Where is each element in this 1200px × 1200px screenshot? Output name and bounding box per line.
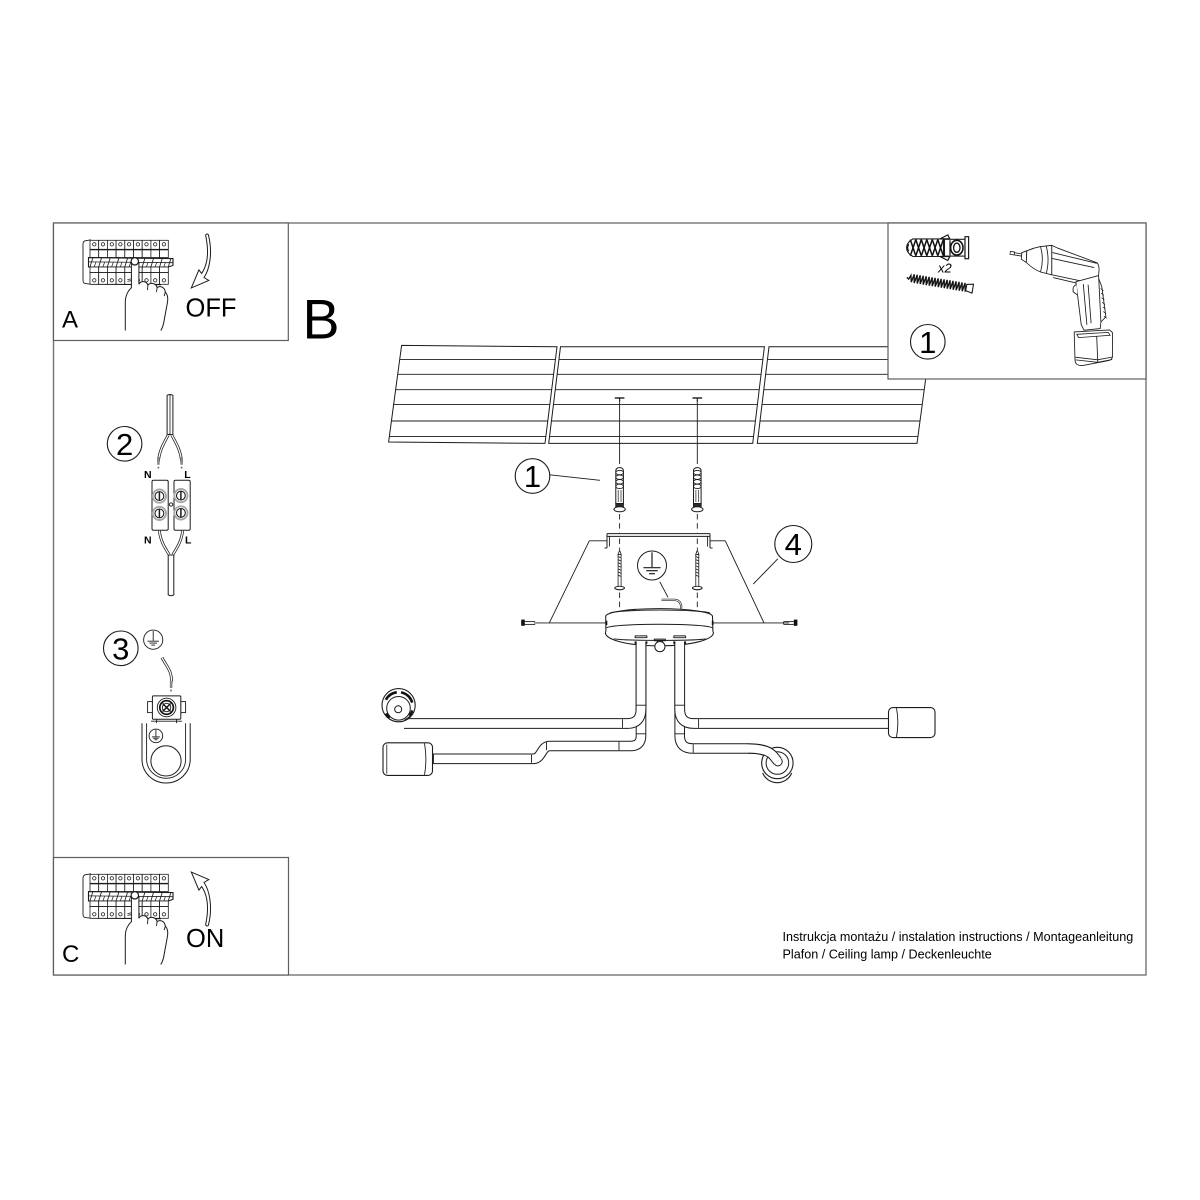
svg-text:2: 2: [116, 427, 133, 462]
svg-text:ON: ON: [186, 925, 224, 953]
svg-text:N: N: [144, 534, 152, 546]
svg-text:x2: x2: [937, 261, 953, 276]
svg-text:L: L: [184, 469, 191, 481]
svg-text:N: N: [144, 469, 152, 481]
svg-text:A: A: [62, 307, 78, 334]
svg-text:3: 3: [112, 631, 129, 666]
svg-text:OFF: OFF: [186, 295, 237, 323]
svg-text:L: L: [185, 534, 192, 546]
svg-text:Plafon / Ceiling lamp / Decken: Plafon / Ceiling lamp / Deckenleuchte: [783, 948, 992, 962]
svg-text:Instrukcja montażu / instalati: Instrukcja montażu / instalation instruc…: [783, 930, 1134, 944]
svg-text:4: 4: [785, 527, 802, 562]
svg-text:C: C: [62, 941, 79, 968]
svg-text:B: B: [303, 288, 340, 350]
svg-text:1: 1: [524, 459, 541, 494]
svg-text:1: 1: [919, 325, 936, 360]
